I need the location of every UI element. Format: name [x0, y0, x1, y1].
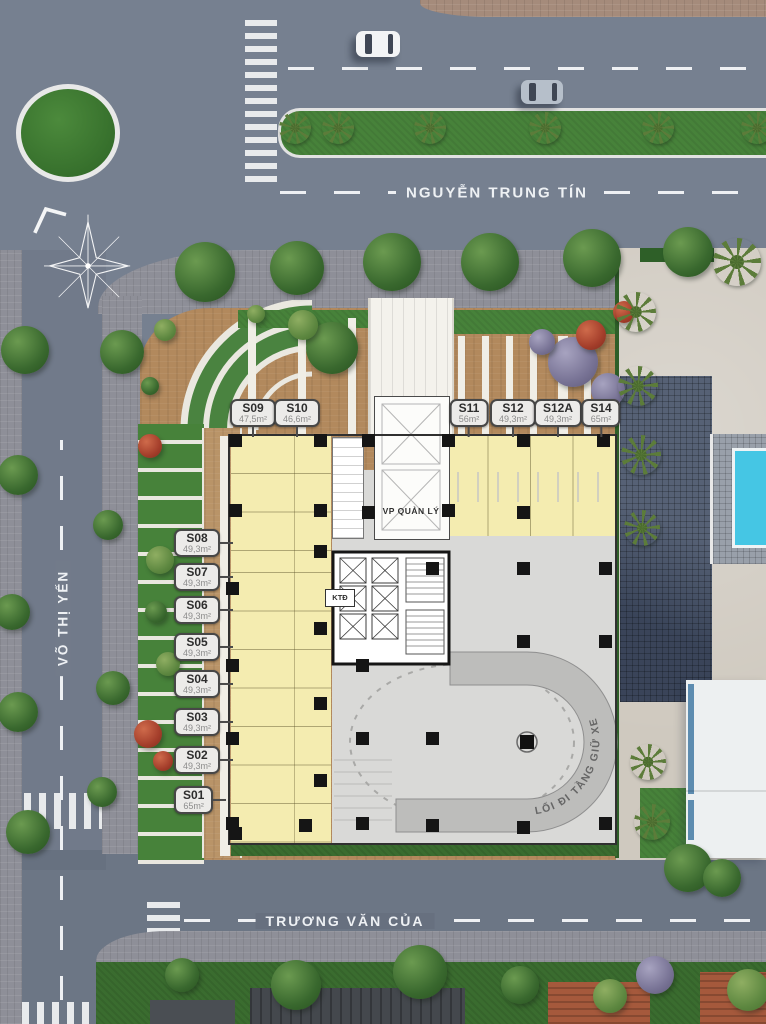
structural-column — [356, 817, 369, 830]
tree — [529, 329, 555, 355]
unit-label-group[interactable]: S1465m² — [581, 399, 620, 437]
leader-line — [512, 427, 514, 437]
tree — [146, 546, 174, 574]
tree — [1, 326, 49, 374]
unit-id: S09 — [239, 402, 267, 415]
unit-label-group[interactable]: S1249,3m² — [490, 399, 536, 437]
unit-id: S11 — [459, 402, 480, 415]
structural-column — [299, 819, 312, 832]
unit-area: 49,3m² — [183, 686, 211, 695]
unit-area: 47,5m² — [239, 415, 267, 424]
structural-column — [314, 545, 327, 558]
unit-label-group[interactable]: S0849,3m² — [174, 529, 233, 557]
tree — [576, 320, 606, 350]
unit-area: 65m² — [590, 415, 611, 424]
unit-label-group[interactable]: S0449,3m² — [174, 670, 233, 698]
tree — [270, 241, 324, 295]
leader-line — [220, 759, 233, 761]
unit-id: S02 — [183, 749, 211, 762]
structural-column — [517, 562, 530, 575]
tree — [93, 510, 123, 540]
tree — [153, 751, 173, 771]
palm-tree — [616, 292, 656, 332]
tree — [393, 945, 447, 999]
palm-tree — [642, 112, 674, 144]
tree — [138, 434, 162, 458]
tree — [363, 233, 421, 291]
unit-id: S10 — [283, 402, 311, 415]
palm-tree — [529, 112, 561, 144]
structural-column — [599, 817, 612, 830]
structural-column — [517, 506, 530, 519]
structural-column — [356, 659, 369, 672]
unit-id: S12A — [543, 402, 573, 415]
tree — [247, 305, 265, 323]
unit-area: 49,3m² — [183, 579, 211, 588]
leader-line — [220, 721, 233, 723]
tree — [461, 233, 519, 291]
tree — [100, 330, 144, 374]
unit-area: 49,3m² — [183, 612, 211, 621]
unit-id: S04 — [183, 673, 211, 686]
structural-column — [442, 504, 455, 517]
structural-column — [599, 635, 612, 648]
tree — [636, 956, 674, 994]
palm-tree — [630, 744, 666, 780]
unit-area: 56m² — [459, 415, 480, 424]
tree — [703, 859, 741, 897]
unit-id: S03 — [183, 711, 211, 724]
leader-line — [220, 646, 233, 648]
tree — [165, 958, 199, 992]
structural-column — [314, 504, 327, 517]
compass-icon — [22, 198, 132, 310]
unit-area: 65m² — [183, 802, 204, 811]
leader-line — [252, 427, 254, 437]
unit-area: 49,3m² — [183, 545, 211, 554]
tree — [663, 227, 713, 277]
palm-tree — [713, 238, 761, 286]
structural-column — [229, 827, 242, 840]
leader-line — [220, 542, 233, 544]
tree — [154, 319, 176, 341]
unit-label-group[interactable]: S0947,5m² — [230, 399, 276, 437]
structural-column — [362, 434, 375, 447]
palm-tree — [624, 510, 660, 546]
unit-label-group[interactable]: S1046,6m² — [274, 399, 320, 437]
palm-tree — [621, 435, 661, 475]
unit-label-group[interactable]: S0749,3m² — [174, 563, 233, 591]
palm-tree — [618, 366, 658, 406]
structural-column — [314, 697, 327, 710]
leader-line — [296, 427, 298, 437]
unit-id: S01 — [183, 789, 204, 802]
leader-line — [220, 609, 233, 611]
unit-id: S08 — [183, 532, 211, 545]
tree — [6, 810, 50, 854]
unit-label-group[interactable]: S0649,3m² — [174, 596, 233, 624]
tree — [288, 310, 318, 340]
tree — [145, 601, 167, 623]
leader-line — [220, 683, 233, 685]
unit-label-group[interactable]: S0165m² — [174, 786, 226, 814]
structural-column — [314, 622, 327, 635]
structural-column — [599, 562, 612, 575]
unit-id: S06 — [183, 599, 211, 612]
structural-column — [517, 821, 530, 834]
tree — [96, 671, 130, 705]
tree — [175, 242, 235, 302]
tree — [0, 594, 30, 630]
palm-tree — [414, 112, 446, 144]
leader-line — [213, 799, 226, 801]
unit-area: 49,3m² — [183, 649, 211, 658]
unit-id: S14 — [590, 402, 611, 415]
tree — [141, 377, 159, 395]
unit-area: 49,3m² — [499, 415, 527, 424]
unit-id: S05 — [183, 636, 211, 649]
structural-column — [229, 504, 242, 517]
unit-label-group[interactable]: S1156m² — [450, 399, 489, 437]
tree — [0, 692, 38, 732]
leader-line — [600, 427, 602, 437]
unit-area: 46,6m² — [283, 415, 311, 424]
structural-column — [517, 635, 530, 648]
tree — [271, 960, 321, 1010]
unit-id: S12 — [499, 402, 527, 415]
tree — [0, 455, 38, 495]
unit-label-group[interactable]: S0549,3m² — [174, 633, 233, 661]
palm-tree — [634, 804, 670, 840]
palm-tree — [279, 112, 311, 144]
tree — [593, 979, 627, 1013]
unit-label-group[interactable]: S0249,3m² — [174, 746, 233, 774]
site-plan-canvas: NGUYỄN TRUNG TÍN TRƯƠNG VĂN CỦA VÕ THỊ Y… — [0, 0, 766, 1024]
leader-line — [557, 427, 559, 437]
tree — [501, 966, 539, 1004]
unit-area: 49,3m² — [543, 415, 573, 424]
structural-column — [426, 819, 439, 832]
decorations-layer — [0, 0, 766, 1024]
tree — [87, 777, 117, 807]
structural-column — [426, 732, 439, 745]
structural-column — [426, 562, 439, 575]
structural-column — [362, 506, 375, 519]
tree — [563, 229, 621, 287]
leader-line — [220, 576, 233, 578]
leader-line — [468, 427, 470, 437]
unit-id: S07 — [183, 566, 211, 579]
unit-label-group[interactable]: S0349,3m² — [174, 708, 233, 736]
structural-column — [356, 732, 369, 745]
unit-area: 49,3m² — [183, 724, 211, 733]
structural-column — [314, 774, 327, 787]
palm-tree — [322, 112, 354, 144]
tree — [727, 969, 766, 1011]
palm-tree — [741, 112, 766, 144]
unit-label-group[interactable]: S12A49,3m² — [534, 399, 582, 437]
tree — [134, 720, 162, 748]
unit-area: 49,3m² — [183, 762, 211, 771]
